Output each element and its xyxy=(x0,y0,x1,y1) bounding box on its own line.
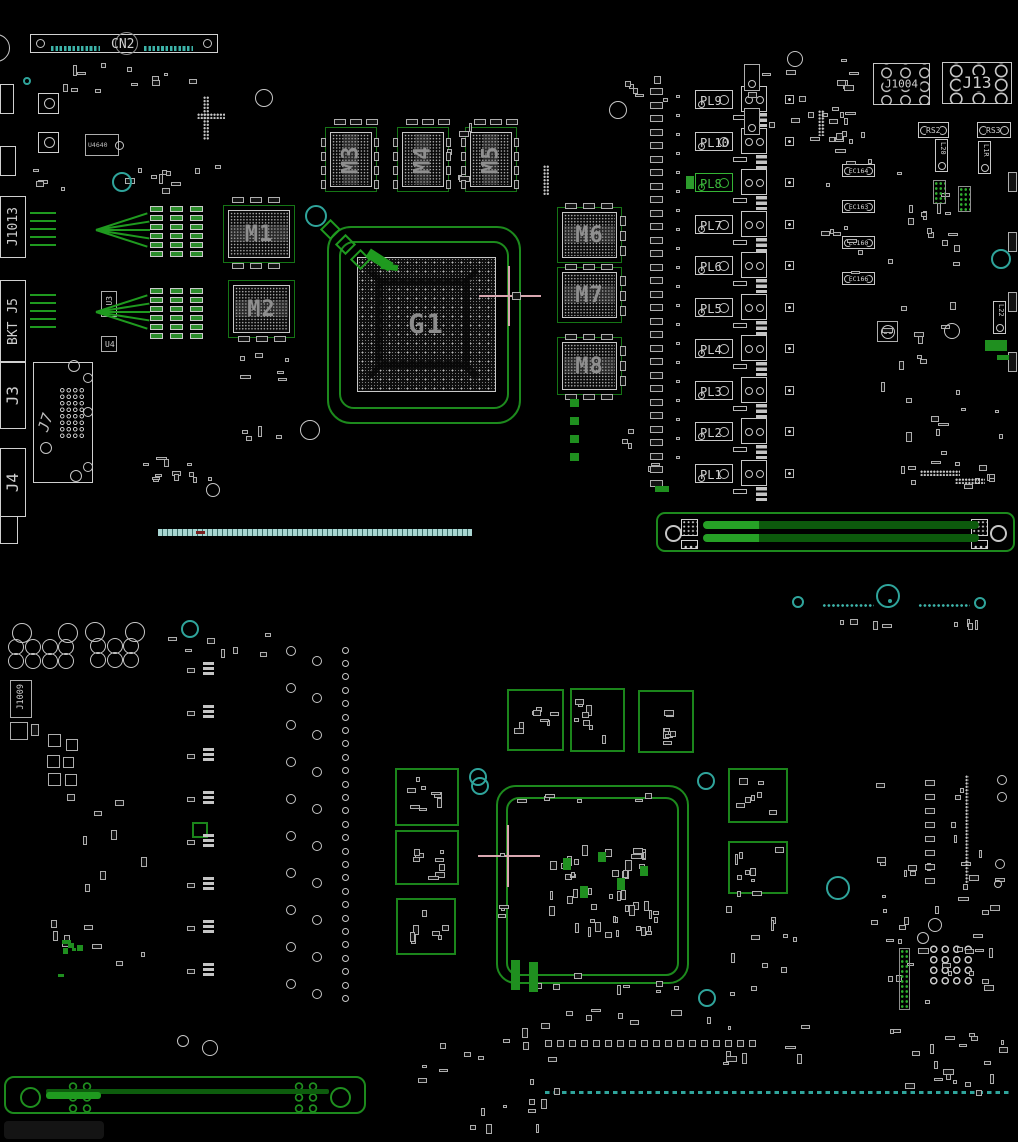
part xyxy=(553,984,560,989)
inductor[interactable]: PL6 xyxy=(695,256,733,275)
ic-small xyxy=(47,755,60,768)
gcell xyxy=(150,215,163,221)
gcell xyxy=(150,242,163,248)
gcell xyxy=(150,233,163,239)
part xyxy=(620,291,626,301)
part xyxy=(486,1124,492,1134)
part xyxy=(676,95,680,98)
part xyxy=(461,138,466,147)
shunt-rs3[interactable]: RS3 xyxy=(977,122,1011,138)
edge-connector-j3[interactable]: J3 xyxy=(0,362,26,429)
part xyxy=(583,720,591,726)
inductor[interactable]: PL5 xyxy=(695,298,733,317)
part xyxy=(440,1043,446,1049)
part xyxy=(969,1033,975,1037)
pad-circle xyxy=(981,164,989,172)
memory-chip-label: M2 xyxy=(234,286,289,332)
pad-circle xyxy=(756,138,764,146)
part xyxy=(622,439,628,444)
part xyxy=(646,931,652,935)
part xyxy=(574,718,579,722)
part xyxy=(982,910,989,915)
ring xyxy=(342,781,349,788)
part xyxy=(925,780,935,786)
pad-circle xyxy=(745,179,753,187)
ring xyxy=(177,1035,189,1047)
mosfet[interactable] xyxy=(741,418,767,444)
part xyxy=(588,888,592,895)
part xyxy=(656,981,663,987)
part xyxy=(260,652,267,657)
gcell xyxy=(190,333,203,339)
gpad xyxy=(529,962,538,992)
part xyxy=(159,174,163,183)
part xyxy=(938,423,949,427)
ring xyxy=(342,727,349,734)
part xyxy=(593,1040,600,1047)
part xyxy=(478,1056,485,1059)
memory-chip-m7[interactable]: M7 xyxy=(562,272,617,318)
crosshair-v xyxy=(507,825,509,887)
capacitor-stack xyxy=(756,321,767,335)
part xyxy=(635,94,644,97)
ring xyxy=(286,942,296,952)
inductor[interactable]: PL10 xyxy=(695,132,733,151)
diode xyxy=(785,220,794,229)
part xyxy=(976,1090,982,1096)
part xyxy=(410,932,414,942)
pcb-boardview-canvas[interactable]: CN2 J1013 BKT J5 J3 J4 J7 U4640 U3 U4 M1… xyxy=(0,0,1018,1142)
pad-circle xyxy=(698,309,705,316)
part xyxy=(571,872,575,877)
ring xyxy=(83,373,93,383)
part xyxy=(631,854,642,859)
edge-connector-bkt-j5[interactable]: BKT J5 xyxy=(0,280,26,362)
capacitor-ec163[interactable]: EC163 xyxy=(842,200,875,213)
part xyxy=(897,172,903,175)
ring xyxy=(58,653,74,669)
pad-circle xyxy=(756,262,764,270)
part xyxy=(620,376,626,386)
power-slot-connector[interactable] xyxy=(656,512,1015,552)
part xyxy=(583,264,595,270)
part xyxy=(174,474,179,481)
part xyxy=(393,166,398,175)
shunt-rs2[interactable]: RS2 xyxy=(918,122,949,138)
part xyxy=(751,986,756,991)
pad-circle xyxy=(1000,126,1009,135)
ic-small xyxy=(66,739,78,751)
gcell xyxy=(190,206,203,212)
u4640-label: U4640 xyxy=(88,142,108,149)
mount-hole xyxy=(20,1087,41,1108)
part xyxy=(474,119,486,125)
part xyxy=(898,939,902,944)
part xyxy=(751,795,756,800)
pad-circle xyxy=(698,267,705,274)
part xyxy=(664,710,674,716)
part xyxy=(215,165,221,169)
part xyxy=(151,175,157,180)
capacitor-ec166[interactable]: EC166 xyxy=(842,272,875,285)
memory-chip-m5[interactable]: M5 xyxy=(470,132,512,187)
coil-l22[interactable]: L22 xyxy=(993,301,1006,334)
part xyxy=(905,1083,915,1089)
part xyxy=(440,850,444,855)
capacitor-ec164[interactable]: EC164 xyxy=(842,164,875,177)
ring xyxy=(609,101,627,119)
part xyxy=(413,857,421,862)
part xyxy=(506,119,518,125)
part xyxy=(393,138,398,147)
gpad xyxy=(570,417,579,425)
resistor xyxy=(733,406,747,411)
part xyxy=(536,1124,540,1133)
part xyxy=(731,953,735,963)
part xyxy=(256,336,268,342)
mosfet[interactable] xyxy=(741,377,767,403)
pad-circle xyxy=(719,220,729,230)
part xyxy=(925,864,935,870)
part xyxy=(835,149,846,153)
part xyxy=(461,166,466,175)
ring xyxy=(107,652,123,668)
part xyxy=(575,699,585,705)
part xyxy=(912,1051,920,1057)
part xyxy=(650,385,663,392)
part xyxy=(930,1044,934,1054)
part xyxy=(650,426,663,433)
pad-circle xyxy=(698,184,705,191)
part xyxy=(888,259,893,264)
part xyxy=(490,119,502,125)
part xyxy=(550,861,556,870)
mosfet[interactable] xyxy=(741,335,767,361)
ring xyxy=(70,470,82,482)
part xyxy=(498,914,505,918)
silk-patch xyxy=(4,1121,104,1139)
tring xyxy=(181,620,199,638)
part xyxy=(951,822,956,828)
capacitor-stack xyxy=(756,404,767,418)
part xyxy=(999,1047,1008,1053)
part xyxy=(650,169,663,176)
inductor-selected[interactable]: PL8 xyxy=(695,173,733,192)
ring xyxy=(342,901,349,908)
part xyxy=(446,166,451,175)
fline xyxy=(30,326,56,328)
part xyxy=(965,949,974,954)
diode xyxy=(785,303,794,312)
memory-chip-m3[interactable]: M3 xyxy=(330,132,372,187)
part xyxy=(591,1009,601,1012)
connector-j13[interactable]: J13 xyxy=(942,62,1012,104)
memory-chip-m4[interactable]: M4 xyxy=(402,132,444,187)
ring xyxy=(312,730,322,740)
part xyxy=(187,883,195,888)
pad-circle xyxy=(719,261,729,271)
part xyxy=(713,1040,720,1047)
memory-footprint[interactable] xyxy=(507,689,564,751)
part xyxy=(726,906,732,913)
part xyxy=(871,920,877,925)
part xyxy=(620,216,626,226)
part xyxy=(438,119,450,125)
part xyxy=(629,905,635,916)
part xyxy=(540,719,549,722)
part xyxy=(791,118,800,123)
part xyxy=(676,266,680,269)
part xyxy=(650,115,663,122)
part xyxy=(676,171,680,174)
memory-chip-m8[interactable]: M8 xyxy=(562,342,617,390)
fline xyxy=(96,311,148,330)
part xyxy=(882,328,892,333)
part xyxy=(797,1054,801,1064)
crosshair-h xyxy=(479,295,541,297)
pin-strip xyxy=(144,46,193,51)
ring xyxy=(342,700,349,707)
wdot xyxy=(543,165,549,195)
memory-chip-label: M8 xyxy=(563,343,616,389)
ring xyxy=(342,874,349,881)
resistor xyxy=(733,240,747,245)
pad-circle xyxy=(745,138,753,146)
diode xyxy=(785,178,794,187)
part xyxy=(350,119,362,125)
j13-label: J13 xyxy=(961,75,994,91)
ic-u4640[interactable]: U4640 xyxy=(85,134,119,156)
ring xyxy=(342,995,349,1002)
gcell xyxy=(170,251,183,257)
gpu-chip-g1[interactable]: G1 xyxy=(357,257,496,392)
gpad xyxy=(563,858,571,870)
part xyxy=(737,875,741,879)
gcell xyxy=(190,215,203,221)
ring xyxy=(25,653,41,669)
part xyxy=(620,306,626,316)
part xyxy=(601,264,613,270)
part xyxy=(832,107,839,111)
part xyxy=(171,182,181,186)
part xyxy=(984,1061,991,1065)
ring xyxy=(928,918,942,932)
part xyxy=(975,620,978,631)
inductor[interactable]: PL2 xyxy=(695,422,733,441)
ic-u4[interactable]: U4 xyxy=(101,336,117,352)
memory-footprint[interactable] xyxy=(395,830,459,885)
part xyxy=(650,264,663,271)
part xyxy=(250,263,262,269)
mosfet[interactable] xyxy=(741,252,767,278)
mosfet[interactable] xyxy=(741,169,767,195)
part xyxy=(670,731,676,736)
part xyxy=(623,870,628,878)
silk-dashed-line xyxy=(545,1091,1010,1094)
part xyxy=(428,876,439,880)
part xyxy=(701,1040,708,1047)
part xyxy=(242,430,248,434)
part xyxy=(446,180,451,189)
inductor[interactable]: PL7 xyxy=(695,215,733,234)
part xyxy=(565,264,577,270)
part xyxy=(901,466,905,474)
edge-connector-j4[interactable]: J4 xyxy=(0,448,26,517)
part xyxy=(736,803,745,808)
part xyxy=(908,218,914,225)
resistor xyxy=(733,364,747,369)
part xyxy=(925,808,935,814)
part xyxy=(416,777,420,782)
tring xyxy=(471,777,489,795)
ring xyxy=(312,841,322,851)
part xyxy=(904,870,908,877)
part xyxy=(982,979,989,984)
gpad xyxy=(640,866,648,876)
memory-chip-m1[interactable]: M1 xyxy=(228,210,290,258)
capacitor-stack xyxy=(756,238,767,252)
part xyxy=(927,228,931,234)
part xyxy=(517,799,527,803)
diode xyxy=(785,386,794,395)
ring xyxy=(342,687,349,694)
ring xyxy=(342,647,349,654)
memory-footprint[interactable] xyxy=(395,768,459,826)
part xyxy=(676,380,680,383)
pad-circle xyxy=(756,304,764,312)
part xyxy=(623,985,630,989)
switch-button xyxy=(44,98,55,109)
gcell xyxy=(190,315,203,321)
j4-label: J4 xyxy=(5,473,21,492)
mosfet[interactable] xyxy=(741,211,767,237)
mosfet[interactable] xyxy=(741,460,767,486)
part xyxy=(849,139,853,144)
pad-circle xyxy=(698,433,705,440)
capacitor-stack xyxy=(756,279,767,293)
ring xyxy=(286,646,296,656)
mosfet[interactable] xyxy=(741,294,767,320)
connector-j1009[interactable]: J1009 xyxy=(10,680,32,718)
pad-circle xyxy=(698,475,705,482)
part xyxy=(187,969,195,974)
pad-strip xyxy=(681,540,698,549)
resistor xyxy=(733,323,747,328)
connector-j1004[interactable]: J1004 xyxy=(873,63,930,105)
part xyxy=(650,453,663,460)
part xyxy=(285,358,289,362)
part xyxy=(948,971,952,976)
part xyxy=(232,263,244,269)
part xyxy=(439,864,445,871)
part xyxy=(868,159,872,164)
part xyxy=(635,799,644,802)
part xyxy=(590,919,595,924)
part xyxy=(676,418,680,421)
part xyxy=(973,934,983,938)
memory-chip-m6[interactable]: M6 xyxy=(562,212,617,258)
part xyxy=(591,904,596,910)
part xyxy=(583,334,595,340)
part xyxy=(514,180,519,189)
part xyxy=(849,72,859,75)
part xyxy=(844,118,848,125)
ring xyxy=(342,754,349,761)
part xyxy=(187,840,195,845)
part xyxy=(960,788,965,793)
part xyxy=(393,152,398,161)
part xyxy=(769,810,777,814)
part xyxy=(77,72,87,75)
inductor[interactable]: PL4 xyxy=(695,339,733,358)
wdot xyxy=(197,113,225,119)
part xyxy=(810,137,820,140)
part xyxy=(762,73,770,76)
inductor[interactable]: PL9 xyxy=(695,90,733,109)
gcell xyxy=(170,224,183,230)
part xyxy=(422,910,427,918)
ring xyxy=(312,915,322,925)
mount-hole xyxy=(990,525,1007,542)
back-slot-connector[interactable] xyxy=(4,1076,366,1114)
inductor[interactable]: PL1 xyxy=(695,464,733,483)
part xyxy=(1008,292,1017,312)
part xyxy=(36,181,44,186)
part xyxy=(904,917,909,925)
part xyxy=(33,169,40,172)
part xyxy=(514,138,519,147)
part xyxy=(1008,352,1017,372)
part xyxy=(541,1099,547,1109)
part xyxy=(942,240,947,246)
part xyxy=(573,889,578,898)
part xyxy=(164,459,169,466)
part xyxy=(801,1025,809,1029)
part xyxy=(116,961,123,965)
part xyxy=(334,119,346,125)
goldfinger-mark xyxy=(196,531,205,534)
part xyxy=(246,436,252,441)
part xyxy=(650,412,663,419)
ring xyxy=(342,955,349,962)
memory-chip-m2[interactable]: M2 xyxy=(233,285,290,333)
part xyxy=(156,457,166,460)
part xyxy=(837,80,846,86)
part xyxy=(258,426,262,436)
coil-l1r[interactable]: L1R xyxy=(978,141,991,174)
part xyxy=(935,906,939,914)
diode xyxy=(785,95,794,104)
part xyxy=(999,434,1003,438)
part xyxy=(910,871,915,876)
part xyxy=(523,1042,529,1050)
part xyxy=(633,88,638,94)
part xyxy=(650,345,663,352)
part xyxy=(187,754,195,759)
coil-l20[interactable]: L20 xyxy=(935,139,948,172)
part xyxy=(374,138,379,147)
part xyxy=(654,76,660,84)
cn2-connector[interactable]: CN2 xyxy=(30,34,218,53)
part xyxy=(961,408,966,412)
edge-connector-j1013[interactable]: J1013 xyxy=(0,196,26,258)
inductor[interactable]: PL3 xyxy=(695,381,733,400)
part xyxy=(945,212,951,215)
pad-circle xyxy=(698,392,705,399)
part xyxy=(168,637,176,641)
part xyxy=(115,800,124,806)
part xyxy=(407,788,417,793)
